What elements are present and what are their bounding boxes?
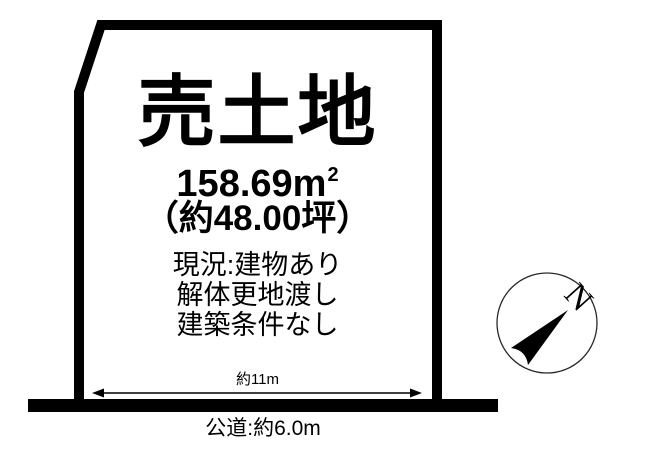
road-label: 公道:約6.0m <box>28 416 498 441</box>
area-tsubo: （約48.00坪） <box>85 197 430 241</box>
compass-north-label: N <box>557 277 600 319</box>
note-current-status: 現況:建物あり <box>85 250 430 280</box>
dimension-arrowhead-left <box>92 389 104 398</box>
note-building-conditions: 建築条件なし <box>85 310 430 340</box>
land-plot-diagram: N 売土地 158.69m2 （約48.00坪） 現況:建物あり 解体更地渡し … <box>0 0 650 463</box>
area-sqm-superscript: 2 <box>327 164 338 186</box>
listing-title: 売土地 <box>85 70 430 154</box>
compass-needle <box>511 310 568 365</box>
compass: N <box>497 273 600 373</box>
note-demolition: 解体更地渡し <box>85 280 430 310</box>
width-dimension-label: 約11m <box>85 371 430 389</box>
dimension-arrowhead-right <box>410 389 422 398</box>
property-notes: 現況:建物あり 解体更地渡し 建築条件なし <box>85 250 430 340</box>
road-bar <box>28 399 498 412</box>
